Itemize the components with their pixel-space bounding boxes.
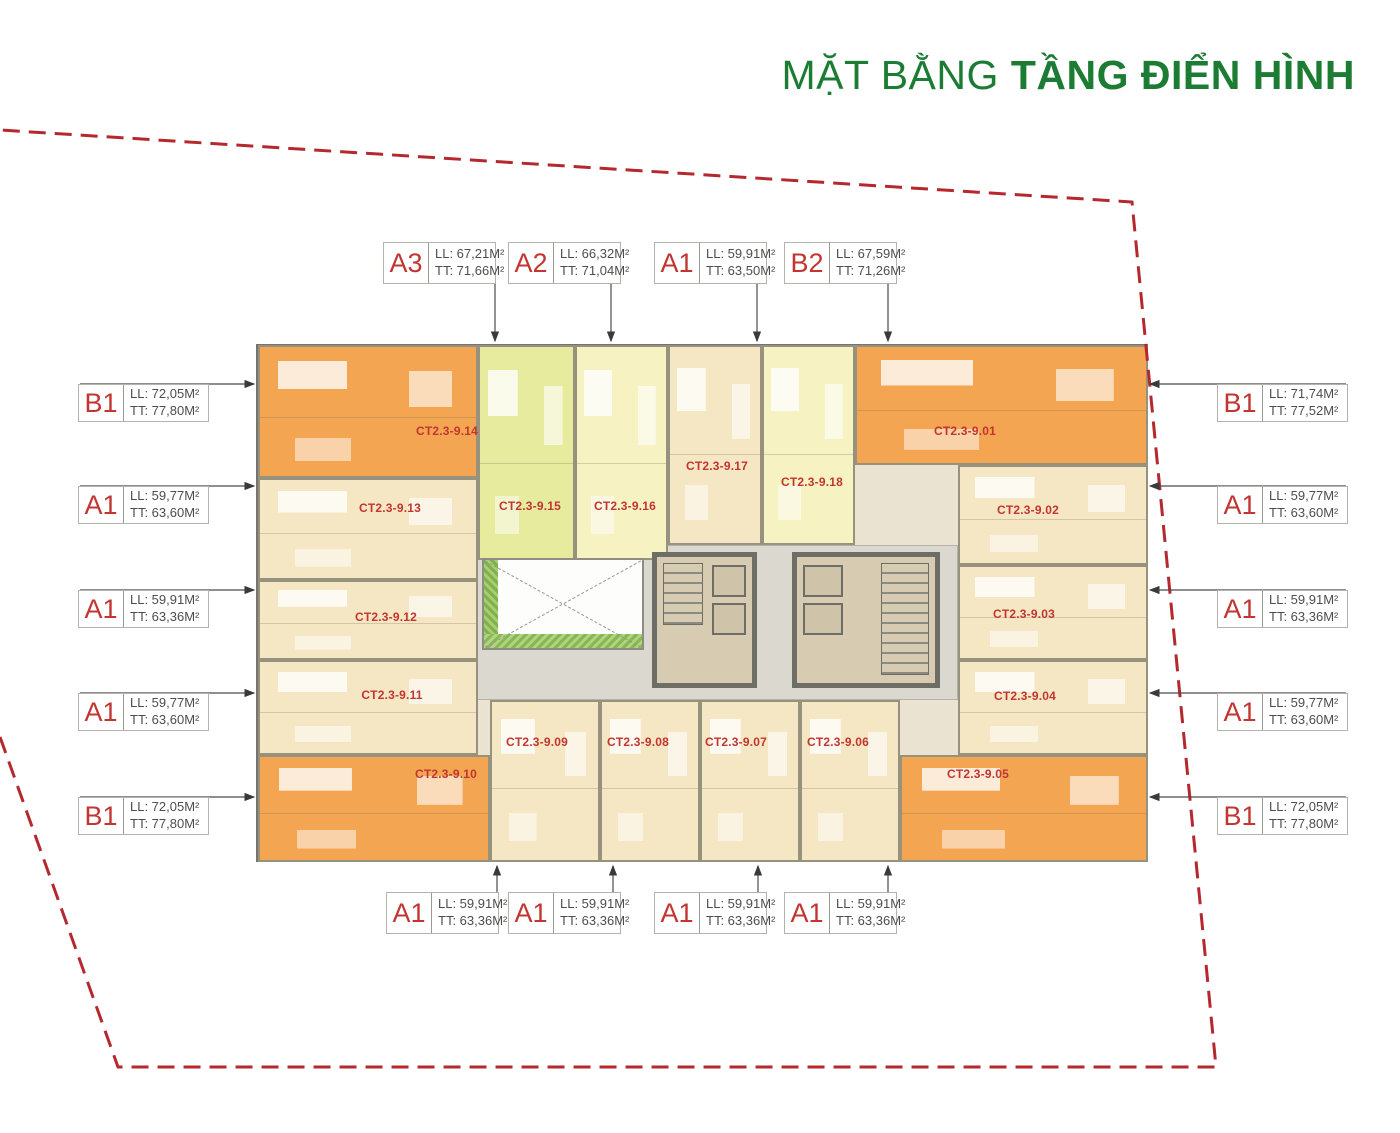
unit-code: CT2.3-9.02 bbox=[997, 503, 1059, 517]
unit-areas: LL: 72,05M²TT: 77,80M² bbox=[124, 797, 199, 835]
unit-type-code: A1 bbox=[655, 893, 700, 933]
area-ll: LL: 59,91M² bbox=[438, 896, 507, 913]
area-tt: TT: 63,50M² bbox=[706, 263, 775, 280]
area-tt: TT: 77,80M² bbox=[1269, 816, 1338, 833]
floor-plan-page: MẶT BẰNGTẦNG ĐIỂN HÌNH CT2.3-9.14CT2.3-9… bbox=[0, 0, 1400, 1133]
garden-planting-strip bbox=[484, 634, 642, 648]
unit-type-label-a1: A1LL: 59,91M²TT: 63,36M² bbox=[654, 892, 767, 934]
unit-type-label-a1: A1LL: 59,91M²TT: 63,36M² bbox=[784, 892, 897, 934]
apartment-unit bbox=[490, 700, 600, 862]
area-tt: TT: 77,80M² bbox=[130, 403, 199, 420]
unit-type-label-a1: A1LL: 59,91M²TT: 63,50M² bbox=[654, 242, 767, 284]
unit-type-label-a1: A1LL: 59,77M²TT: 63,60M² bbox=[1217, 693, 1348, 731]
unit-areas: LL: 59,91M²TT: 63,36M² bbox=[700, 894, 775, 932]
unit-areas: LL: 59,91M²TT: 63,36M² bbox=[830, 894, 905, 932]
unit-code: CT2.3-9.01 bbox=[934, 424, 996, 438]
unit-type-label-a3: A3LL: 67,21M²TT: 71,66M² bbox=[383, 242, 496, 284]
area-ll: LL: 59,77M² bbox=[130, 695, 199, 712]
area-tt: TT: 63,36M² bbox=[130, 609, 199, 626]
unit-areas: LL: 59,91M²TT: 63,36M² bbox=[554, 894, 629, 932]
area-ll: LL: 59,91M² bbox=[560, 896, 629, 913]
unit-code: CT2.3-9.12 bbox=[355, 610, 417, 624]
unit-type-code: A1 bbox=[785, 893, 830, 933]
unit-code: CT2.3-9.13 bbox=[359, 501, 421, 515]
unit-type-code: B1 bbox=[1218, 385, 1263, 421]
unit-areas: LL: 59,77M²TT: 63,60M² bbox=[124, 693, 199, 731]
unit-type-code: A1 bbox=[655, 243, 700, 283]
page-title: MẶT BẰNGTẦNG ĐIỂN HÌNH bbox=[782, 52, 1356, 99]
area-tt: TT: 77,52M² bbox=[1269, 403, 1338, 420]
unit-areas: LL: 59,77M²TT: 63,60M² bbox=[124, 486, 199, 524]
area-ll: LL: 59,91M² bbox=[706, 896, 775, 913]
unit-type-code: A1 bbox=[1218, 487, 1263, 523]
area-tt: TT: 77,80M² bbox=[130, 816, 199, 833]
unit-areas: LL: 71,74M²TT: 77,52M² bbox=[1263, 384, 1338, 422]
apartment-unit bbox=[855, 345, 1148, 465]
unit-code: CT2.3-9.10 bbox=[415, 767, 477, 781]
courtyard-garden bbox=[482, 558, 644, 650]
unit-areas: LL: 72,05M²TT: 77,80M² bbox=[124, 384, 199, 422]
unit-type-label-b1: B1LL: 72,05M²TT: 77,80M² bbox=[78, 384, 209, 422]
unit-type-label-a2: A2LL: 66,32M²TT: 71,04M² bbox=[508, 242, 621, 284]
unit-areas: LL: 59,77M²TT: 63,60M² bbox=[1263, 486, 1338, 524]
area-tt: TT: 63,36M² bbox=[836, 913, 905, 930]
apartment-unit bbox=[258, 345, 478, 478]
area-ll: LL: 59,91M² bbox=[130, 592, 199, 609]
unit-type-label-a1: A1LL: 59,77M²TT: 63,60M² bbox=[1217, 486, 1348, 524]
unit-code: CT2.3-9.14 bbox=[416, 424, 478, 438]
unit-type-label-a1: A1LL: 59,91M²TT: 63,36M² bbox=[1217, 590, 1348, 628]
unit-areas: LL: 67,21M²TT: 71,66M² bbox=[429, 244, 504, 282]
unit-type-code: A1 bbox=[1218, 694, 1263, 730]
unit-type-label-b1: B1LL: 71,74M²TT: 77,52M² bbox=[1217, 384, 1348, 422]
area-ll: LL: 67,59M² bbox=[836, 246, 905, 263]
apartment-unit bbox=[575, 345, 668, 560]
area-ll: LL: 72,05M² bbox=[1269, 799, 1338, 816]
apartment-unit bbox=[478, 345, 575, 560]
unit-code: CT2.3-9.15 bbox=[499, 499, 561, 513]
unit-type-label-a1: A1LL: 59,91M²TT: 63,36M² bbox=[508, 892, 621, 934]
unit-areas: LL: 59,91M²TT: 63,36M² bbox=[124, 590, 199, 628]
unit-type-code: B1 bbox=[79, 798, 124, 834]
apartment-unit bbox=[762, 345, 855, 545]
unit-type-code: B1 bbox=[1218, 798, 1263, 834]
unit-type-code: B1 bbox=[79, 385, 124, 421]
area-tt: TT: 63,60M² bbox=[1269, 505, 1338, 522]
elevator-shaft bbox=[712, 565, 746, 597]
unit-type-code: A1 bbox=[79, 591, 124, 627]
stairs bbox=[663, 563, 703, 625]
area-ll: LL: 59,77M² bbox=[130, 488, 199, 505]
elevator-stair-core-right bbox=[792, 552, 940, 688]
area-ll: LL: 59,91M² bbox=[706, 246, 775, 263]
unit-code: CT2.3-9.04 bbox=[994, 689, 1056, 703]
unit-type-code: A1 bbox=[79, 694, 124, 730]
unit-type-label-b1: B1LL: 72,05M²TT: 77,80M² bbox=[1217, 797, 1348, 835]
area-ll: LL: 59,77M² bbox=[1269, 695, 1338, 712]
unit-code: CT2.3-9.06 bbox=[807, 735, 869, 749]
unit-areas: LL: 59,91M²TT: 63,50M² bbox=[700, 244, 775, 282]
area-tt: TT: 63,36M² bbox=[560, 913, 629, 930]
area-tt: TT: 63,60M² bbox=[130, 505, 199, 522]
unit-code: CT2.3-9.11 bbox=[361, 688, 422, 702]
title-prefix: MẶT BẰNG bbox=[782, 52, 999, 98]
unit-type-code: A2 bbox=[509, 243, 554, 283]
unit-code: CT2.3-9.16 bbox=[594, 499, 656, 513]
elevator-shaft bbox=[803, 603, 843, 635]
apartment-unit bbox=[258, 660, 478, 755]
unit-type-code: A1 bbox=[1218, 591, 1263, 627]
area-ll: LL: 71,74M² bbox=[1269, 386, 1338, 403]
apartment-unit bbox=[958, 660, 1148, 755]
area-ll: LL: 72,05M² bbox=[130, 799, 199, 816]
unit-type-code: A1 bbox=[509, 893, 554, 933]
area-tt: TT: 63,36M² bbox=[706, 913, 775, 930]
unit-type-label-b2: B2LL: 67,59M²TT: 71,26M² bbox=[784, 242, 897, 284]
apartment-unit bbox=[900, 755, 1148, 862]
area-tt: TT: 71,04M² bbox=[560, 263, 629, 280]
area-tt: TT: 63,60M² bbox=[130, 712, 199, 729]
unit-code: CT2.3-9.03 bbox=[993, 607, 1055, 621]
unit-type-code: A1 bbox=[79, 487, 124, 523]
unit-areas: LL: 59,91M²TT: 63,36M² bbox=[432, 894, 507, 932]
unit-type-label-b1: B1LL: 72,05M²TT: 77,80M² bbox=[78, 797, 209, 835]
unit-areas: LL: 72,05M²TT: 77,80M² bbox=[1263, 797, 1338, 835]
area-ll: LL: 59,91M² bbox=[836, 896, 905, 913]
unit-code: CT2.3-9.18 bbox=[781, 475, 843, 489]
unit-areas: LL: 59,77M²TT: 63,60M² bbox=[1263, 693, 1338, 731]
apartment-unit bbox=[258, 478, 478, 580]
unit-code: CT2.3-9.05 bbox=[947, 767, 1009, 781]
apartment-unit bbox=[668, 345, 762, 545]
area-ll: LL: 72,05M² bbox=[130, 386, 199, 403]
area-ll: LL: 67,21M² bbox=[435, 246, 504, 263]
unit-type-label-a1: A1LL: 59,91M²TT: 63,36M² bbox=[386, 892, 499, 934]
area-ll: LL: 66,32M² bbox=[560, 246, 629, 263]
apartment-unit bbox=[700, 700, 800, 862]
area-ll: LL: 59,91M² bbox=[1269, 592, 1338, 609]
stairs bbox=[881, 563, 929, 675]
unit-type-code: A3 bbox=[384, 243, 429, 283]
unit-code: CT2.3-9.17 bbox=[686, 459, 748, 473]
area-tt: TT: 71,66M² bbox=[435, 263, 504, 280]
unit-type-code: B2 bbox=[785, 243, 830, 283]
area-tt: TT: 63,36M² bbox=[1269, 609, 1338, 626]
elevator-stair-core-left bbox=[652, 552, 757, 688]
unit-areas: LL: 66,32M²TT: 71,04M² bbox=[554, 244, 629, 282]
area-tt: TT: 63,60M² bbox=[1269, 712, 1338, 729]
area-tt: TT: 71,26M² bbox=[836, 263, 905, 280]
unit-type-label-a1: A1LL: 59,77M²TT: 63,60M² bbox=[78, 486, 209, 524]
unit-type-code: A1 bbox=[387, 893, 432, 933]
unit-code: CT2.3-9.07 bbox=[705, 735, 767, 749]
title-emphasis: TẦNG ĐIỂN HÌNH bbox=[1011, 52, 1355, 98]
elevator-shaft bbox=[803, 565, 843, 597]
area-ll: LL: 59,77M² bbox=[1269, 488, 1338, 505]
apartment-unit bbox=[600, 700, 700, 862]
unit-code: CT2.3-9.09 bbox=[506, 735, 568, 749]
elevator-shaft bbox=[712, 603, 746, 635]
apartment-unit bbox=[800, 700, 900, 862]
area-tt: TT: 63,36M² bbox=[438, 913, 507, 930]
unit-type-label-a1: A1LL: 59,77M²TT: 63,60M² bbox=[78, 693, 209, 731]
unit-areas: LL: 67,59M²TT: 71,26M² bbox=[830, 244, 905, 282]
unit-type-label-a1: A1LL: 59,91M²TT: 63,36M² bbox=[78, 590, 209, 628]
unit-areas: LL: 59,91M²TT: 63,36M² bbox=[1263, 590, 1338, 628]
unit-code: CT2.3-9.08 bbox=[607, 735, 669, 749]
